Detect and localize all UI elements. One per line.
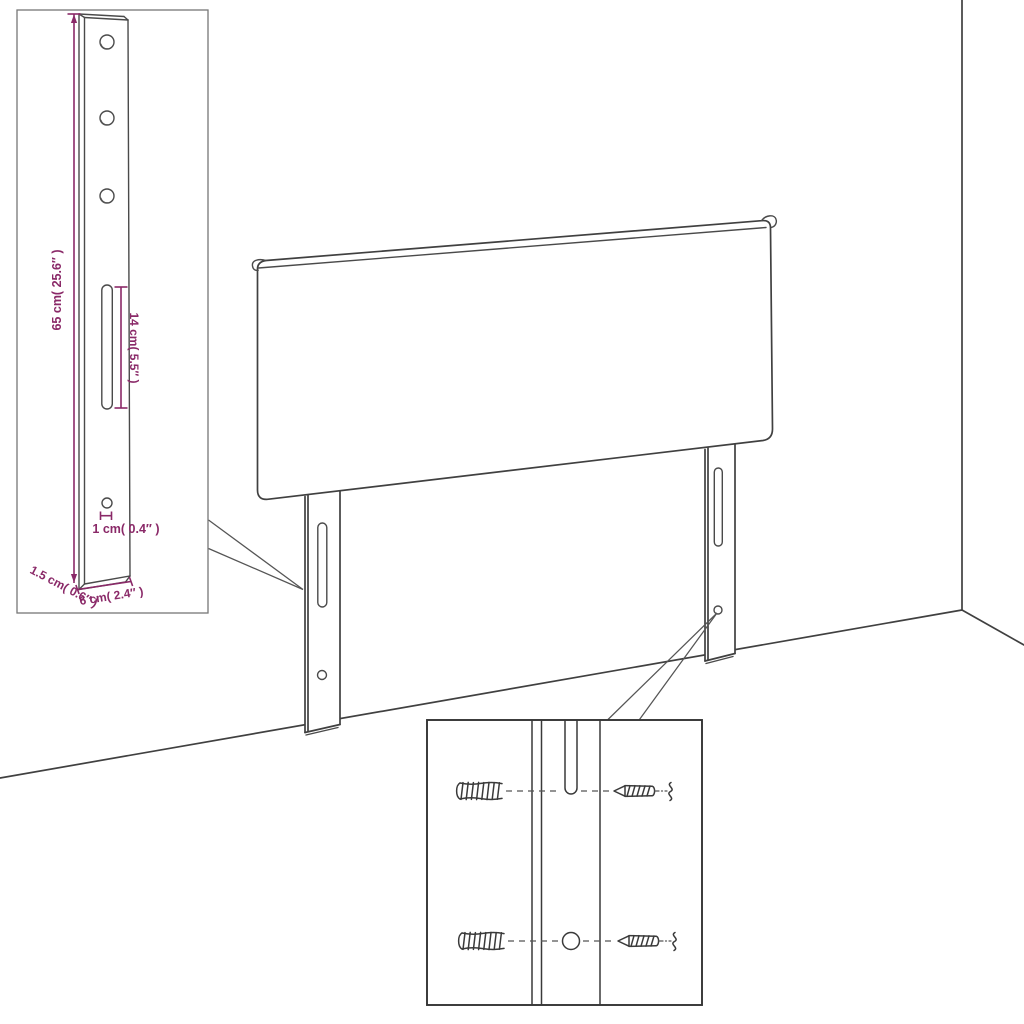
- left-leg: [305, 490, 340, 735]
- dim-slot-label: 14 cm( 5.5″ ): [127, 312, 141, 383]
- dim-height-label: 65 cm( 25.6″ ): [50, 249, 64, 330]
- assembly-diagram: 65 cm( 25.6″ ) 14 cm( 5.5″ ) 1 cm( 0.4″ …: [0, 0, 1024, 1024]
- hardware-inset: [427, 720, 702, 1005]
- callout-lines-left: [209, 520, 304, 590]
- callout-lines-right: [608, 613, 717, 720]
- diagram-canvas: 65 cm( 25.6″ ) 14 cm( 5.5″ ) 1 cm( 0.4″ …: [0, 0, 1024, 1024]
- headboard-panel: [252, 216, 776, 500]
- leg-detail-inset: 65 cm( 25.6″ ) 14 cm( 5.5″ ) 1 cm( 0.4″ …: [17, 10, 208, 613]
- right-leg: [705, 444, 735, 664]
- dim-hole-label: 1 cm( 0.4″ ): [92, 522, 159, 536]
- floor-line-right: [962, 610, 1024, 645]
